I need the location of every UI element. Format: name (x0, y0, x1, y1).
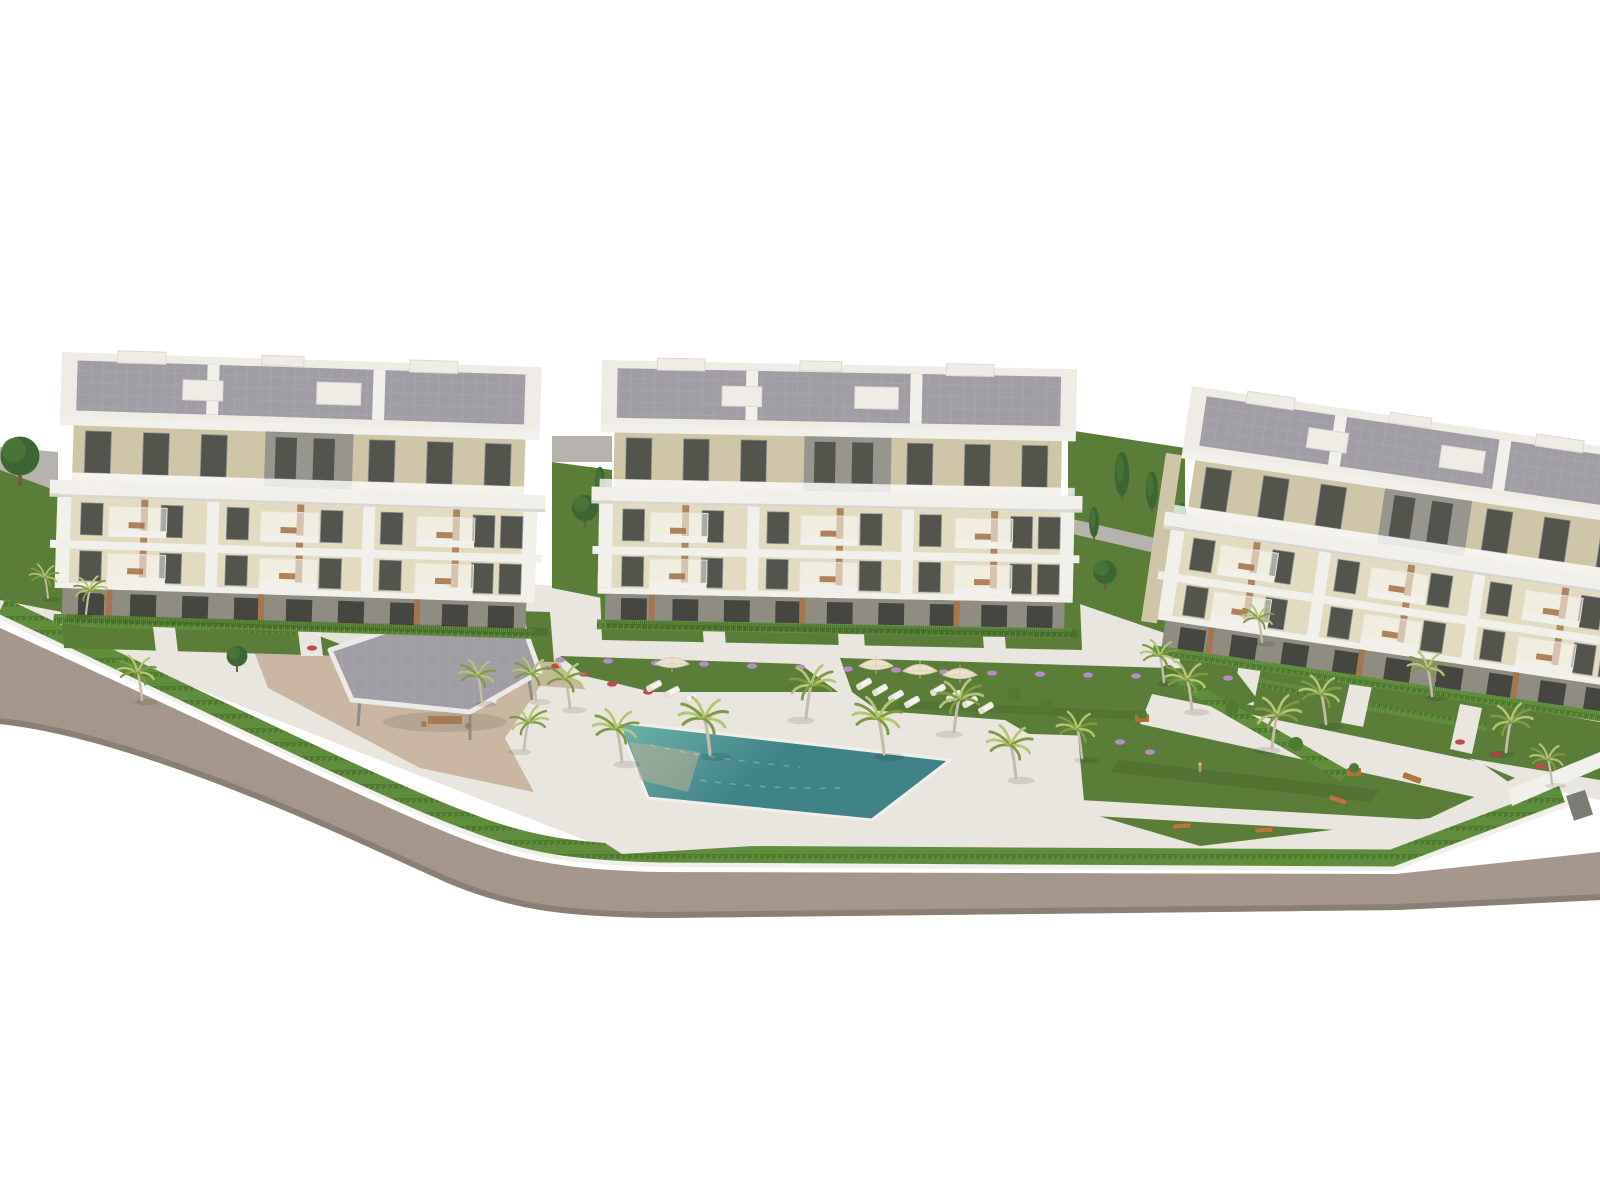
building-left (45, 349, 549, 639)
retaining-wall-gap1 (552, 436, 612, 462)
render-canvas: Aerial 3D rendering of a residential apa… (0, 0, 1600, 1200)
pergola-table (428, 716, 462, 724)
person (1198, 762, 1202, 772)
building-middle (589, 357, 1085, 639)
